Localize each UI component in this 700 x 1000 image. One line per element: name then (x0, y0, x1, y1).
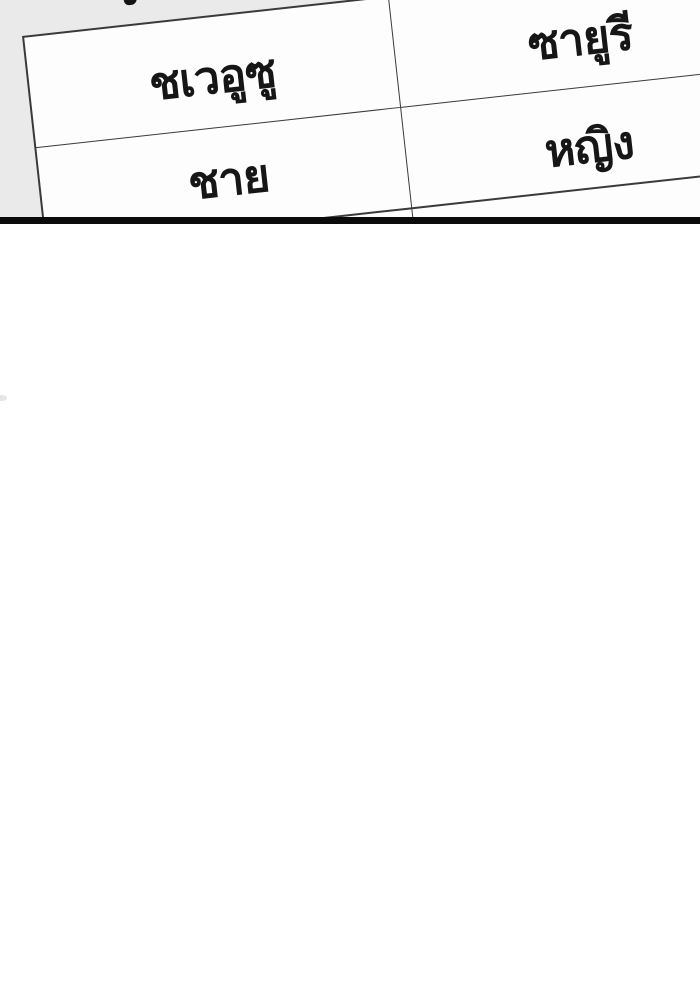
faint-speck (0, 395, 7, 401)
panel-divider-line (0, 217, 700, 224)
table-panel: ชเวอูซู ซายูรี ชาย หญิง (0, 0, 700, 217)
character-comparison-table: ชเวอูซู ซายูรี ชาย หญิง (22, 0, 700, 217)
blank-panel (0, 224, 700, 1000)
cutoff-text-mark (124, 0, 138, 6)
webtoon-page: ชเวอูซู ซายูรี ชาย หญิง (0, 0, 700, 1000)
